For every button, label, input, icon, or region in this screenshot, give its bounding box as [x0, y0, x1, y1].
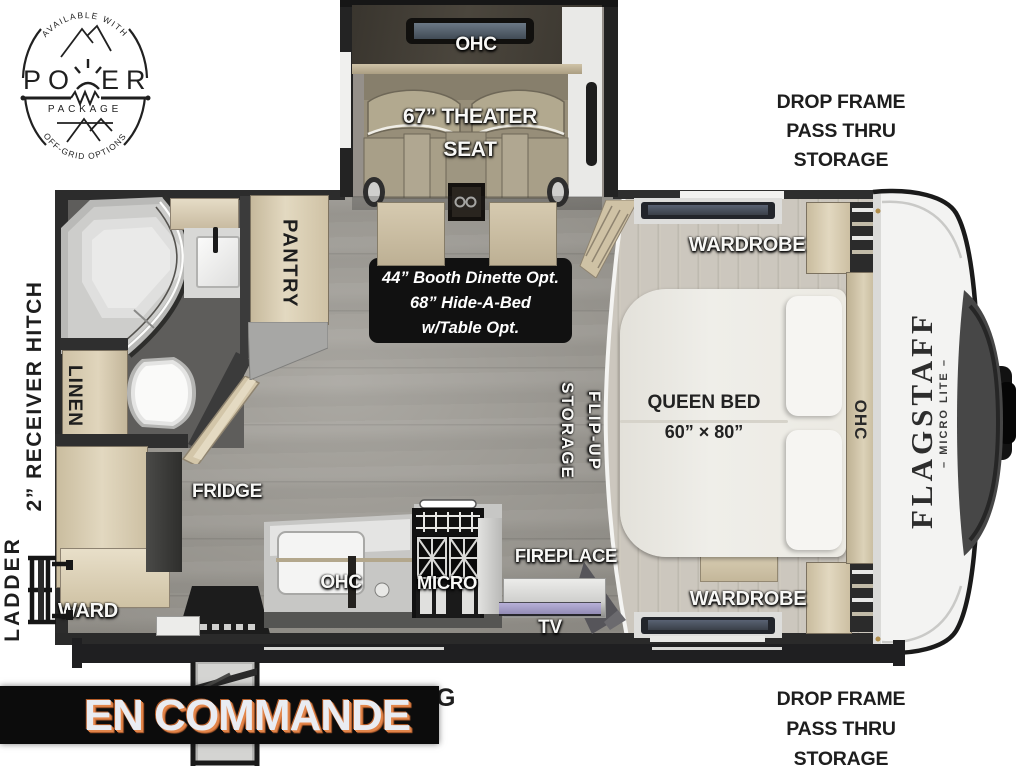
svg-text:OFF-GRID OPTIONS: OFF-GRID OPTIONS: [42, 131, 129, 161]
svg-text:PO: PO: [23, 65, 76, 95]
svg-text:PACKAGE: PACKAGE: [48, 104, 122, 115]
svg-text:AVAILABLE WITH: AVAILABLE WITH: [40, 10, 131, 39]
svg-text:ER: ER: [101, 65, 153, 95]
